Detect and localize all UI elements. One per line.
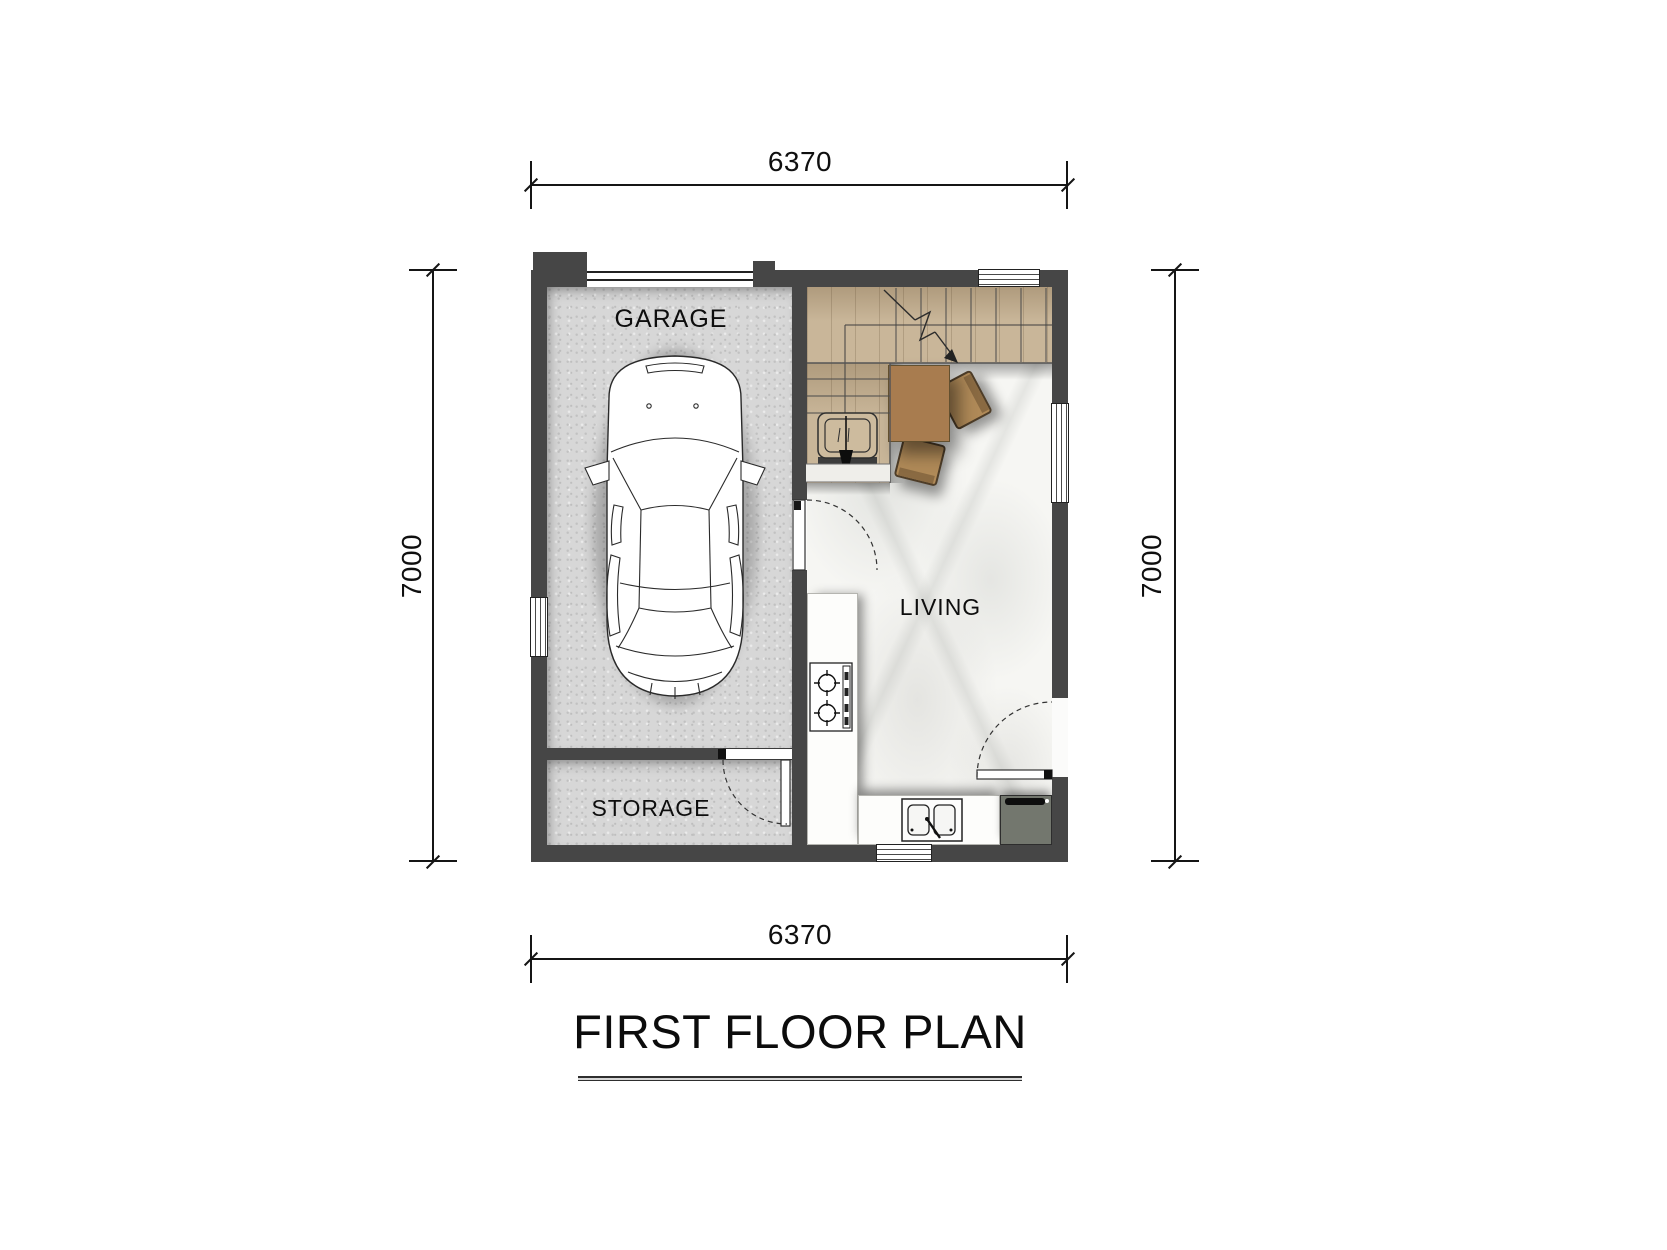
refrigerator: [1000, 795, 1052, 845]
garage-floor: [547, 287, 792, 748]
living-room-label: LIVING: [868, 594, 1013, 621]
refrigerator-hinge-dot: [1045, 799, 1049, 803]
kitchen-counter-bottom: [858, 795, 1000, 845]
stair-hall-floor-upper: [807, 287, 1052, 363]
wall-bottom-right: [931, 845, 1068, 862]
dimension-line: [432, 270, 434, 862]
wall-right-upper: [1052, 270, 1068, 403]
dimension-line: [1174, 270, 1176, 862]
right-wall-window: [1051, 403, 1069, 503]
wall-top-middle: [755, 270, 978, 287]
dimension-top-value: 6370: [700, 146, 900, 178]
kitchen-counter-left: [807, 593, 858, 845]
wall-storage: [547, 748, 723, 760]
storage-room-label: STORAGE: [560, 795, 742, 822]
title-underline: [578, 1076, 1022, 1081]
storage-door-opening: [723, 748, 792, 760]
dimension-bottom-value: 6370: [700, 919, 900, 951]
garage-room-label: GARAGE: [591, 305, 751, 334]
dimension-right-value: 7000: [1136, 501, 1166, 631]
wall-right-middle: [1052, 503, 1068, 698]
left-wall-window: [530, 597, 548, 657]
garage-door-line: [587, 271, 753, 281]
refrigerator-handle: [1005, 798, 1045, 805]
garage-door-pier-left: [533, 252, 587, 272]
wall-left-lower: [531, 657, 547, 862]
dimension-left-value: 7000: [396, 501, 426, 631]
dimension-line: [531, 958, 1068, 960]
garage-living-door-opening: [792, 500, 807, 570]
entry-door-opening: [1052, 698, 1068, 777]
wall-divider-upper: [792, 287, 807, 500]
dimension-line: [531, 184, 1068, 186]
top-wall-window: [978, 269, 1040, 287]
dining-table: [888, 365, 950, 442]
wall-left-upper: [531, 270, 547, 597]
drawing-title: FIRST FLOOR PLAN: [560, 1004, 1040, 1059]
stair-hall-floor-lower: [807, 363, 890, 483]
floor-plan-sheet: GARAGE STORAGE LIVING 6370 6370 7000 700…: [0, 0, 1667, 1250]
threshold-shadow: [807, 483, 890, 495]
wall-divider-lower: [792, 570, 807, 845]
wall-bottom-left: [531, 845, 876, 862]
bottom-wall-window: [876, 844, 932, 862]
